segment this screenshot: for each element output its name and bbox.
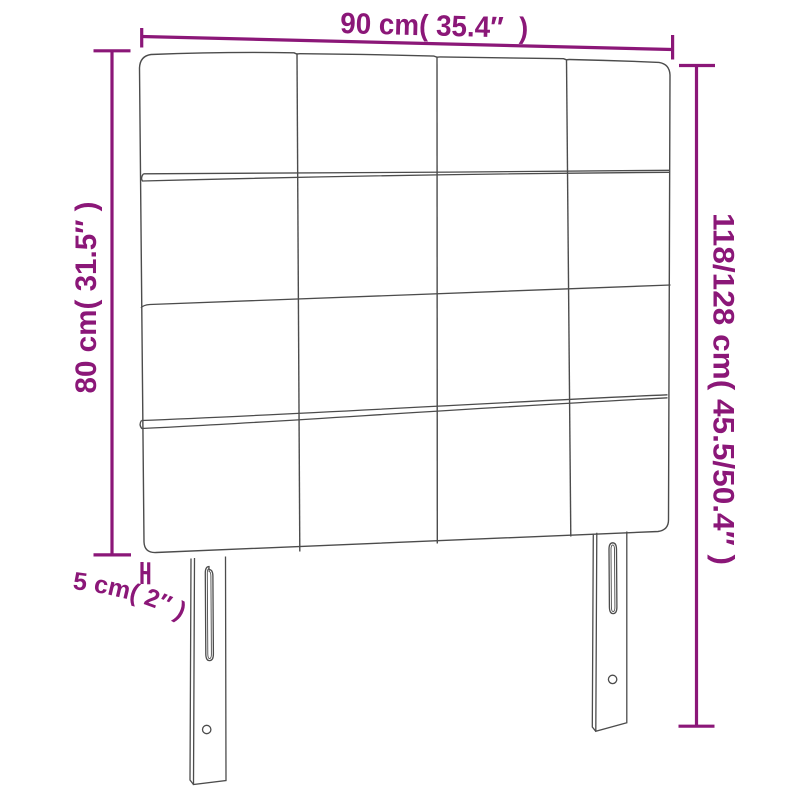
svg-text:80 cm( 31.5″ ): 80 cm( 31.5″ ) bbox=[70, 202, 103, 394]
svg-text:90 cm( 35.4″ ): 90 cm( 35.4″ ) bbox=[340, 7, 529, 45]
svg-text:118/128 cm( 45.5/50.4″ ): 118/128 cm( 45.5/50.4″ ) bbox=[707, 213, 740, 565]
